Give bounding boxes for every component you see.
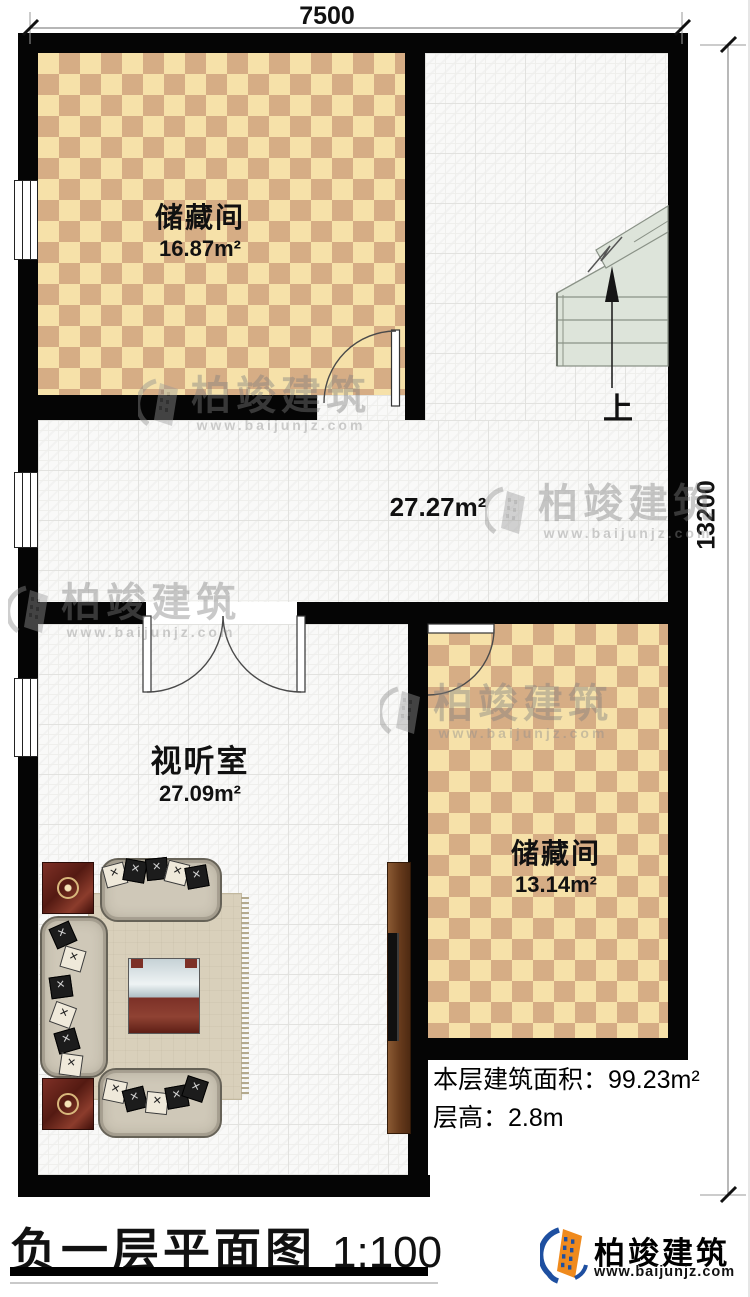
door-storage2: [428, 624, 494, 695]
floor-plan-canvas: 储藏间 16.87m² 27.27m² 视听室 27.09m² 储藏间 13.1…: [0, 0, 750, 1297]
room-area: 13.14m²: [511, 872, 601, 898]
stairs-up-label: 上: [603, 384, 633, 428]
room-label-hall: 27.27m²: [390, 492, 487, 523]
pillow: [49, 975, 74, 1000]
room-name: 视听室: [151, 736, 250, 781]
pillow: [122, 858, 147, 883]
room-name: 储藏间: [511, 832, 601, 872]
dimension-line-top: [23, 12, 690, 44]
floor-area-text: 本层建筑面积：99.23m²: [433, 1062, 700, 1100]
double-door-av-room: [143, 616, 305, 692]
title-underline-thin: [10, 1282, 438, 1284]
room-area: 27.09m²: [151, 781, 250, 807]
room-label-av-room: 视听室 27.09m²: [151, 736, 250, 807]
tv-screen: [388, 933, 399, 1041]
room-label-storage1: 储藏间 16.87m²: [155, 196, 245, 262]
title-underline-thick: [10, 1267, 428, 1276]
floor-height-text: 层高：2.8m: [433, 1100, 700, 1138]
dimension-top-value: 7500: [299, 2, 355, 31]
room-label-storage2: 储藏间 13.14m²: [511, 832, 601, 898]
brand-url: www.baijunjz.com: [594, 1264, 735, 1280]
coffee-table: [128, 958, 200, 1034]
pillow: [59, 1053, 84, 1078]
floor-info: 本层建筑面积：99.23m² 层高：2.8m: [433, 1062, 700, 1137]
room-name: 储藏间: [155, 196, 245, 236]
dimension-right-value: 13200: [693, 480, 722, 550]
door-storage1: [324, 330, 400, 406]
dimension-line-right: [700, 37, 746, 1202]
side-table-top: [42, 862, 94, 914]
room-area: 16.87m²: [155, 236, 245, 262]
pillow: [184, 864, 209, 889]
brand-logo-icon: [540, 1224, 588, 1284]
side-table-bottom: [42, 1078, 94, 1130]
